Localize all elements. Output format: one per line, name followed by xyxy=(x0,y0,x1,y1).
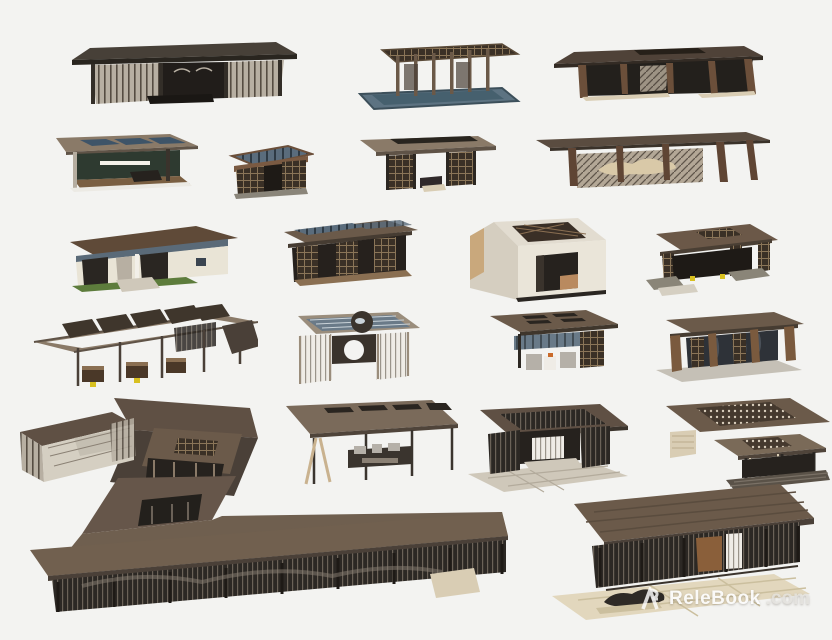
model-courtyard-pavilion xyxy=(632,220,778,302)
model-garden-house xyxy=(56,222,238,298)
model-lattice-plinth-pavilion xyxy=(646,308,804,386)
model-landscape-screen-canopy xyxy=(520,130,770,196)
relebook-logo-icon xyxy=(638,587,664,611)
model-firepit-pergola xyxy=(280,306,422,392)
model-twin-screen-pavilion xyxy=(350,128,498,198)
model-ornate-lattice-pavilion xyxy=(226,142,314,202)
watermark: ReleBook.com xyxy=(638,587,810,611)
watermark-brand: ReleBook xyxy=(669,588,761,610)
model-glass-pavilion xyxy=(62,40,297,110)
model-glass-slat-veranda xyxy=(266,214,418,298)
model-awning-pavilion xyxy=(468,306,618,386)
watermark-suffix: .com xyxy=(766,588,810,610)
render-canvas: ReleBook.com xyxy=(0,0,832,640)
model-pergola-walkway xyxy=(26,302,258,394)
model-marble-cube-pavilion xyxy=(460,212,608,302)
model-l-corridor xyxy=(22,476,508,628)
model-pergola-pool xyxy=(352,38,524,113)
model-dark-timber-pavilion xyxy=(548,44,763,106)
model-skylight-lounge xyxy=(40,132,200,194)
